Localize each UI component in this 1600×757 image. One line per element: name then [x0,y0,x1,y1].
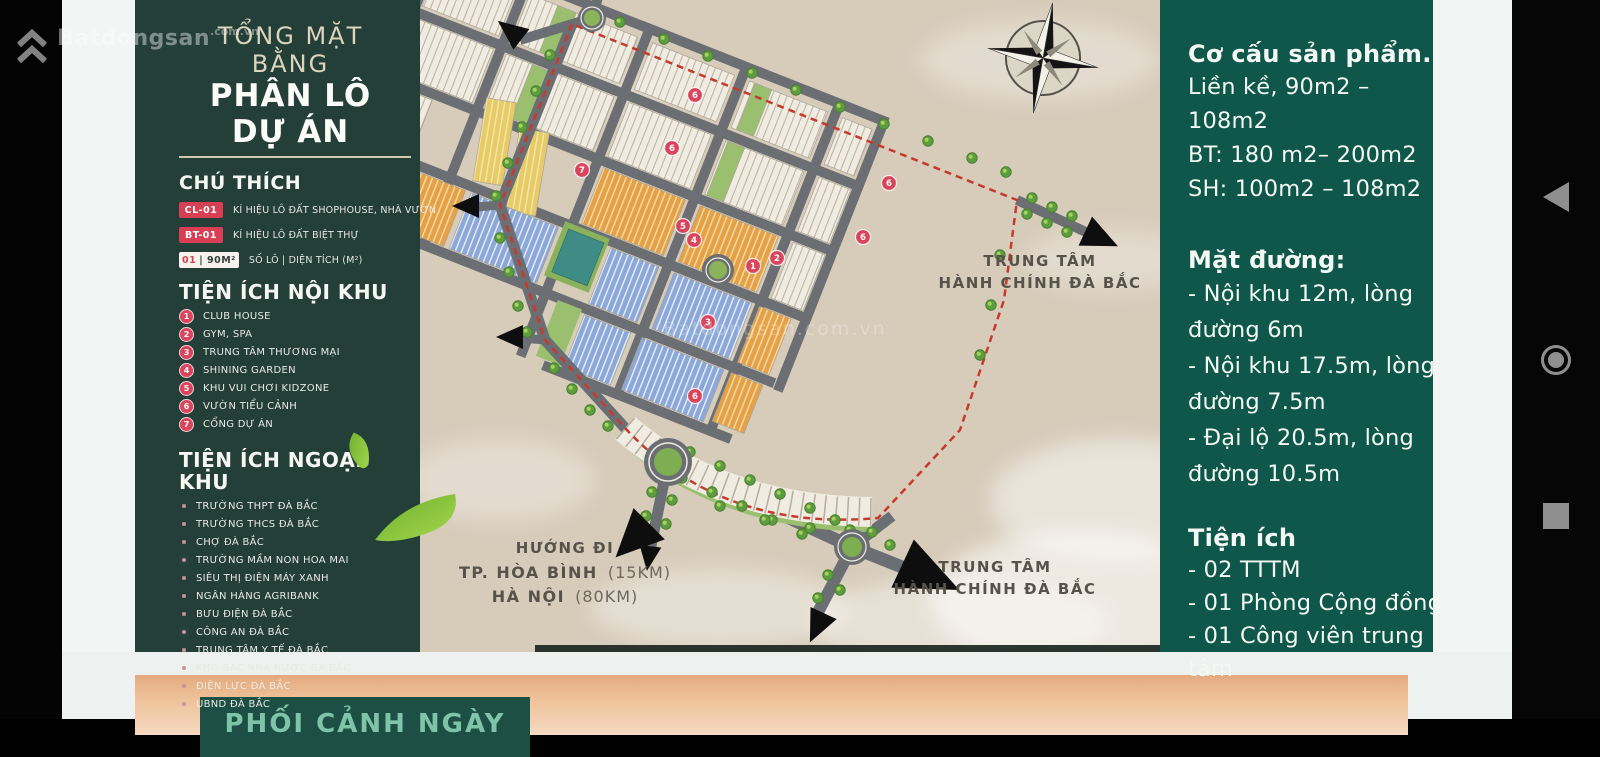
bullet-icon [182,666,186,670]
legend-row: 01| 90M²SỐ LÔ | DIỆN TÍCH (M²) [179,251,402,269]
map-marker: 6 [688,88,703,103]
amenity-label: TRUNG TÂM THƯƠNG MẠI [203,347,340,358]
bullet-icon [182,630,186,634]
amenity-label: SIÊU THỊ ĐIỆN MÁY XANH [196,573,329,584]
info-line: - 01 Công viên trung tâm [1188,620,1450,686]
bullet-icon [182,684,186,688]
svg-text:6: 6 [860,233,866,243]
info-block-title: Cơ cấu sản phẩm. [1188,38,1450,70]
svg-text:4: 4 [691,236,697,246]
info-line: - 01 Phòng Cộng đồng [1188,587,1450,620]
legend-row: CL-01KÍ HIỆU LÔ ĐẤT SHOPHOUSE, NHÀ VƯỜN [179,201,402,219]
svg-text:6: 6 [669,144,675,154]
legend-badge: CL-01 [179,202,223,218]
amenity-label: TRƯỜNG THPT ĐÀ BẮC [196,501,318,512]
external-amenity-item: CHỢ ĐÀ BẮC [179,533,402,551]
info-line: - Đại lộ 20.5m, lòng đường 10.5m [1188,420,1450,492]
info-panel: Cơ cấu sản phẩm.Liền kề, 90m2 – 108m2BT:… [1160,0,1433,652]
info-block: Cơ cấu sản phẩm.Liền kề, 90m2 – 108m2BT:… [1188,38,1450,206]
external-amenity-item: CÔNG AN ĐÀ BẮC [179,623,402,641]
bullet-icon [182,576,186,580]
legend-badge: BT-01 [179,227,223,243]
svg-text:HÀNH CHÍNH ĐÀ BẮC: HÀNH CHÍNH ĐÀ BẮC [894,577,1097,598]
amenity-number-badge: 6 [179,399,194,414]
title-underline [179,156,411,158]
external-amenity-item: TRƯỜNG THPT ĐÀ BẮC [179,497,402,515]
internal-amenity-item: 3TRUNG TÂM THƯƠNG MẠI [179,343,402,361]
svg-text:TRUNG TÂM: TRUNG TÂM [938,557,1051,576]
amenity-label: VƯỜN TIỂU CẢNH [203,401,297,412]
info-line: - Nội khu 17.5m, lòng đường 7.5m [1188,348,1450,420]
external-amenity-item: TRUNG TÂM Y TẾ ĐÀ BẮC [179,641,402,659]
amenity-label: CLUB HOUSE [203,311,271,322]
amenity-label: BƯU ĐIỆN ĐÀ BẮC [196,609,292,620]
internal-amenity-item: 7CỔNG DỰ ÁN [179,415,402,433]
info-line: - Nội khu 12m, lòng đường 6m [1188,276,1450,348]
external-amenity-item: ĐIỆN LỰC ĐÀ BẮC [179,677,402,695]
svg-text:TP. HÒA BÌNH (15KM: TP. HÒA BÌNH (15KM) [459,563,671,582]
back-icon [1543,182,1569,212]
amenity-label: CÔNG AN ĐÀ BẮC [196,627,289,638]
external-amenity-item: TRƯỜNG MẦM NON HOA MAI [179,551,402,569]
external-amenities-title: TIỆN ÍCH NGOẠI KHU [179,449,402,493]
amenity-number-badge: 4 [179,363,194,378]
amenity-label: TRUNG TÂM Y TẾ ĐÀ BẮC [196,645,328,656]
home-button[interactable] [1512,345,1600,375]
perspective-caption-text: PHỐI CẢNH NGÀY [225,709,506,739]
legend-label: KÍ HIỆU LÔ ĐẤT SHOPHOUSE, NHÀ VƯỜN [233,205,436,216]
map-marker: 6 [688,389,703,404]
internal-amenity-item: 4SHINING GARDEN [179,361,402,379]
legend-label: SỐ LÔ | DIỆN TÍCH (M²) [249,255,363,266]
external-amenity-item: KHO BẠC NHÀ NƯỚC ĐÀ BẮC [179,659,402,677]
amenity-label: KHO BẠC NHÀ NƯỚC ĐÀ BẮC [196,663,351,674]
external-amenity-item: NGÂN HÀNG AGRIBANK [179,587,402,605]
bullet-icon [182,612,186,616]
amenity-label: CHỢ ĐÀ BẮC [196,537,264,548]
map-marker: 6 [665,141,680,156]
amenity-label: SHINING GARDEN [203,365,296,376]
bullet-icon [182,648,186,652]
bullet-icon [182,540,186,544]
bullet-icon [182,702,186,706]
external-amenity-item: BƯU ĐIỆN ĐÀ BẮC [179,605,402,623]
legend-panel: TỔNG MẶT BẰNG PHÂN LÔ DỰ ÁN CHÚ THÍCH CL… [135,0,420,652]
svg-text:2: 2 [774,254,780,264]
amenity-label: KHU VUI CHƠI KIDZONE [203,383,329,394]
map-marker: 7 [575,163,590,178]
svg-text:6: 6 [692,91,698,101]
map-marker: 4 [687,233,702,248]
internal-amenities-list: 1CLUB HOUSE2GYM, SPA3TRUNG TÂM THƯƠNG MẠ… [179,307,402,433]
amenity-label: ĐIỆN LỰC ĐÀ BẮC [196,681,291,692]
internal-amenity-item: 6VƯỜN TIỂU CẢNH [179,397,402,415]
plan-title-line2: PHÂN LÔ DỰ ÁN [179,78,402,150]
plan-title-line1: TỔNG MẶT BẰNG [179,22,402,78]
info-line: SH: 100m2 – 108m2 [1188,172,1450,206]
internal-amenities-title: TIỆN ÍCH NỘI KHU [179,281,402,303]
amenity-label: TRƯỜNG THCS ĐÀ BẮC [196,519,319,530]
legend-row: BT-01KÍ HIỆU LÔ ĐẤT BIỆT THỰ [179,226,402,244]
svg-text:HƯỚNG ĐI: HƯỚNG ĐI [516,538,614,557]
legend-title: CHÚ THÍCH [179,172,402,194]
siteplan-svg: 12345666667 [420,0,1160,652]
info-block-title: Tiện ích [1188,522,1450,554]
amenity-number-badge: 1 [179,309,194,324]
svg-text:5: 5 [680,222,686,232]
info-line: - 02 TTTM [1188,554,1450,587]
info-block: Mặt đường:- Nội khu 12m, lòng đường 6m- … [1188,244,1450,492]
amenity-label: GYM, SPA [203,329,252,340]
amenity-number-badge: 5 [179,381,194,396]
masterplan-image[interactable]: TỔNG MẶT BẰNG PHÂN LÔ DỰ ÁN CHÚ THÍCH CL… [135,0,1433,652]
map-marker: 5 [676,219,691,234]
legend-label: KÍ HIỆU LÔ ĐẤT BIỆT THỰ [233,230,359,241]
screen-bezel-left [0,0,62,719]
map-marker: 6 [856,230,871,245]
home-icon [1541,345,1571,375]
amenity-number-badge: 3 [179,345,194,360]
bullet-icon [182,558,186,562]
bullet-icon [182,594,186,598]
svg-text:6: 6 [886,179,892,189]
svg-text:7: 7 [579,166,585,176]
image-bottom-shadow [535,645,1160,652]
map-watermark: Batdongsan.com.vn [663,318,886,340]
info-line: Liền kề, 90m2 – 108m2 [1188,70,1450,138]
external-amenity-item: TRƯỜNG THCS ĐÀ BẮC [179,515,402,533]
siteplan-map: 12345666667 [420,0,1160,652]
external-amenities-list: TRƯỜNG THPT ĐÀ BẮCTRƯỜNG THCS ĐÀ BẮCCHỢ … [179,497,402,713]
amenity-label: NGÂN HÀNG AGRIBANK [196,591,319,602]
svg-text:HÀ NỘI (80KM): HÀ NỘI (80KM) [492,586,639,606]
amenity-number-badge: 2 [179,327,194,342]
app-background: TỔNG MẶT BẰNG PHÂN LÔ DỰ ÁN CHÚ THÍCH CL… [62,0,1512,719]
svg-text:TRUNG TÂM: TRUNG TÂM [983,251,1096,270]
info-blocks: Cơ cấu sản phẩm.Liền kề, 90m2 – 108m2BT:… [1188,38,1433,686]
recents-icon [1543,503,1569,529]
bullet-icon [182,522,186,526]
back-button[interactable] [1512,182,1600,212]
external-amenity-item: SIÊU THỊ ĐIỆN MÁY XANH [179,569,402,587]
external-amenity-item: UBND ĐÀ BẮC [179,695,402,713]
map-marker: 2 [770,251,785,266]
internal-amenity-item: 5KHU VUI CHƠI KIDZONE [179,379,402,397]
info-line: BT: 180 m2– 200m2 [1188,138,1450,172]
map-marker: 1 [746,259,761,274]
svg-text:1: 1 [750,262,756,272]
amenity-label: UBND ĐÀ BẮC [196,699,270,710]
bullet-icon [182,504,186,508]
android-nav-bar [1512,0,1600,719]
amenity-label: TRƯỜNG MẦM NON HOA MAI [196,555,349,566]
legend-list: CL-01KÍ HIỆU LÔ ĐẤT SHOPHOUSE, NHÀ VƯỜNB… [179,201,402,269]
legend-badge: 01| 90M² [179,252,239,268]
info-block: Tiện ích- 02 TTTM- 01 Phòng Cộng đồng- 0… [1188,522,1450,686]
svg-text:6: 6 [692,392,698,402]
recents-button[interactable] [1512,503,1600,529]
amenity-number-badge: 7 [179,417,194,432]
map-marker: 6 [882,176,897,191]
info-block-title: Mặt đường: [1188,244,1450,276]
svg-text:HÀNH CHÍNH ĐÀ BẮC: HÀNH CHÍNH ĐÀ BẮC [939,271,1142,292]
internal-amenity-item: 1CLUB HOUSE [179,307,402,325]
internal-amenity-item: 2GYM, SPA [179,325,402,343]
amenity-label: CỔNG DỰ ÁN [203,419,273,430]
